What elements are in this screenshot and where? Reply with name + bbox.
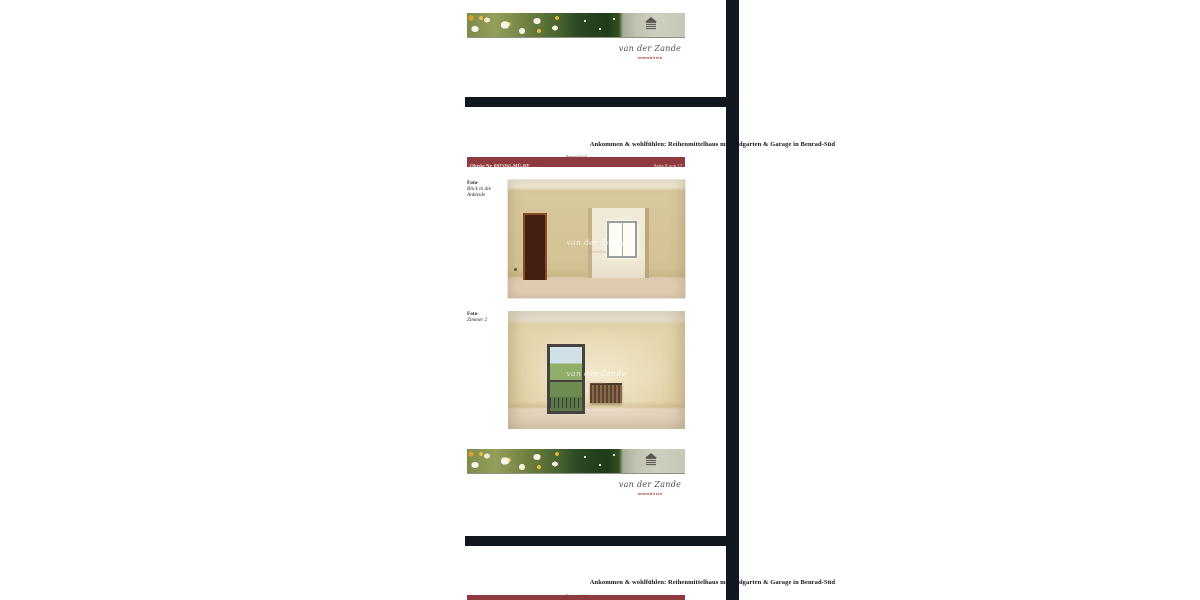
viewer-edge-bar (726, 0, 739, 600)
photo-caption: Foto- Blick in die Ankleide (467, 181, 507, 199)
object-number-bar: Objekt Nr. 0923261-MÜ-RE Seite 9 von 12 (467, 595, 685, 600)
agency-logo: van der Zande Immobilien (605, 38, 695, 62)
photo-watermark: van der Zande Immobilien (508, 232, 685, 255)
logo-name: van der Zande (619, 480, 681, 489)
agency-logo: van der Zande Immobilien (605, 474, 695, 498)
photo-room-2: van der Zande Immobilien (508, 311, 685, 429)
photo-dressing-room: van der Zande Immobilien (508, 180, 685, 298)
logo-name: van der Zande (619, 44, 681, 53)
page-count: Seite 8 von 12 (653, 164, 682, 169)
house-icon (643, 453, 659, 467)
page-title: Ankommen & wohlfühlen: Reihenmittelhaus … (467, 139, 685, 147)
document-viewer: van der Zande Immobilien Ankommen & wohl… (0, 0, 1200, 600)
flower-banner (467, 449, 685, 474)
page-separator (465, 536, 739, 546)
page-subtitle: Benrad-Süd (467, 588, 685, 594)
page-subtitle: Benrad-Süd (467, 149, 685, 155)
house-icon (643, 17, 659, 31)
page-title: Ankommen & wohlfühlen: Reihenmittelhaus … (467, 577, 685, 585)
object-number-bar: Objekt Nr. 0923261-MÜ-RE Seite 8 von 12 (467, 157, 685, 167)
page-separator (465, 97, 739, 107)
radiator-shape (590, 383, 622, 403)
flower-banner (467, 13, 685, 38)
photo-caption: Foto- Zimmer 2 (467, 312, 507, 324)
photo-watermark: van der Zande Immobilien (508, 363, 685, 386)
object-number: Objekt Nr. 0923261-MÜ-RE (470, 164, 530, 169)
